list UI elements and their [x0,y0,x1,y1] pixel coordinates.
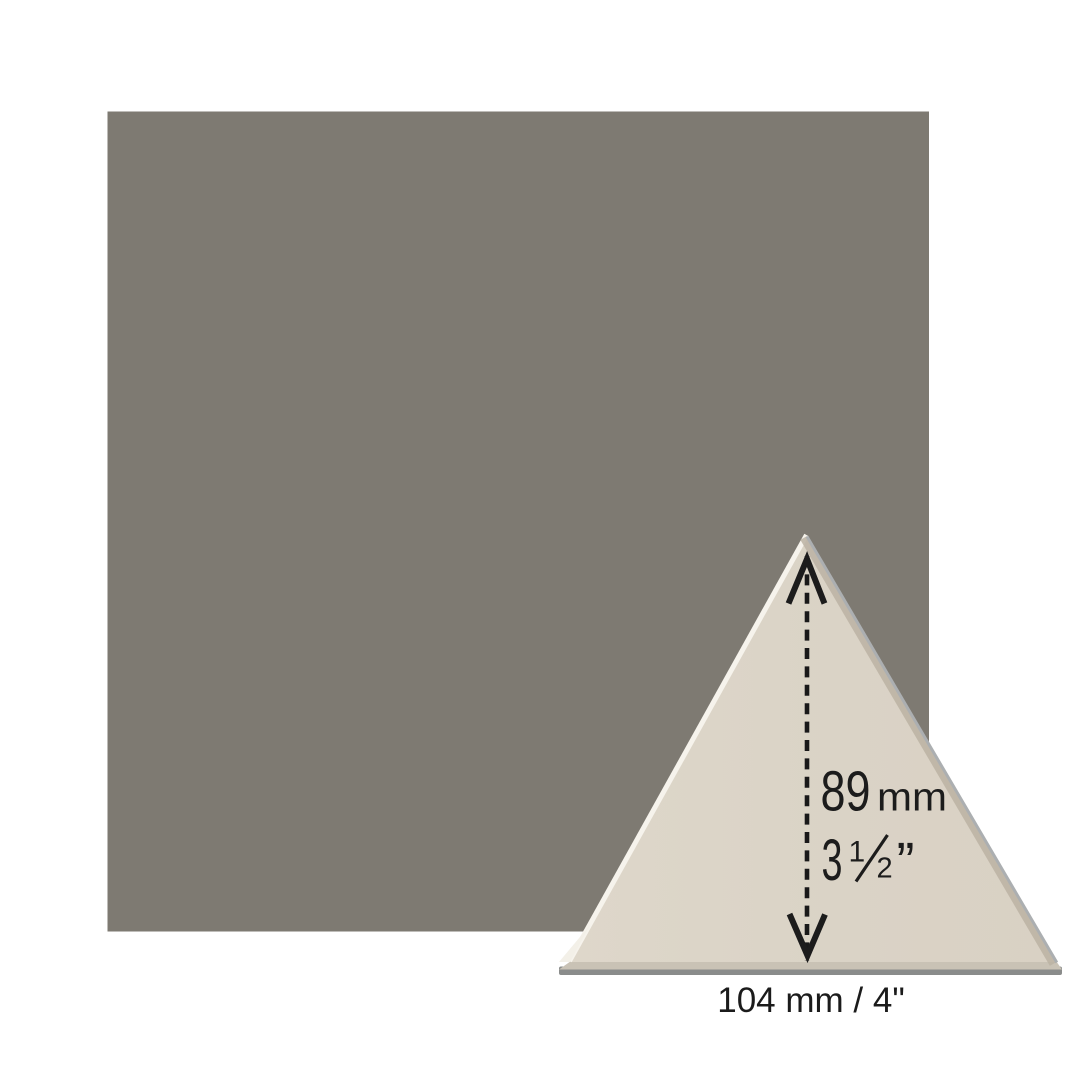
svg-text:2: 2 [877,853,893,885]
svg-text:89: 89 [821,760,871,824]
svg-text:3: 3 [822,828,843,893]
svg-text:mm: mm [877,776,947,820]
svg-text:”: ” [897,832,915,892]
svg-text:1: 1 [849,836,866,869]
svg-text:104 mm / 4": 104 mm / 4" [717,981,905,1020]
